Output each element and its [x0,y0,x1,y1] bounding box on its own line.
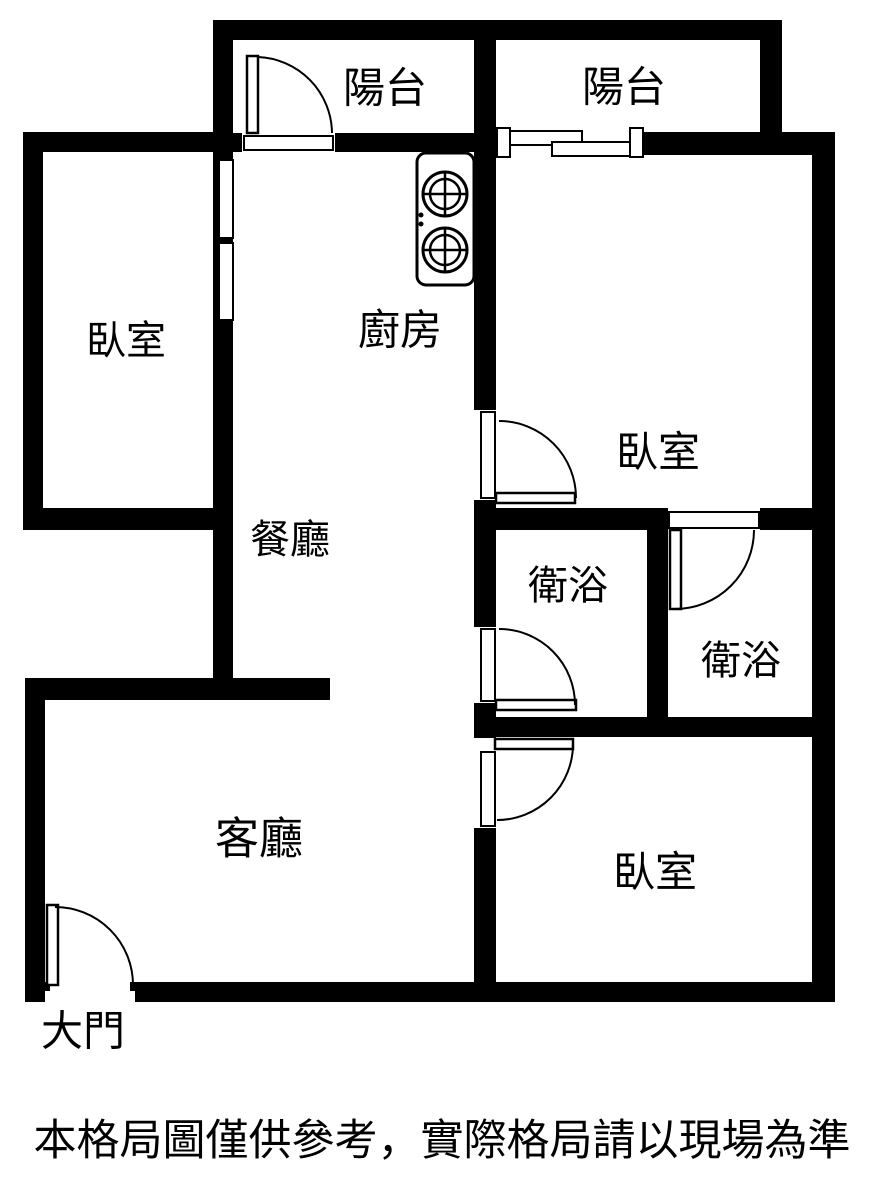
door-frame-bathroom-left [481,629,495,701]
label-entrance: 大門 [41,1008,125,1055]
wall-bathroom-divider [647,530,668,717]
door-leaf-bedroom-right [496,493,575,503]
door-leaf-balcony-left [247,56,258,133]
door-arc-bathroom-right [675,530,754,609]
stove-knob-2 [419,222,424,227]
door-arc-bedroom-bottom [497,744,573,820]
stove-knob-1 [419,213,424,218]
door-leaf-bathroom-right [670,530,681,609]
wall-left-upper [23,132,43,530]
label-bedroom-left: 臥室 [86,319,166,363]
gas-stove-icon [417,153,474,285]
door-threshold-balcony-left [244,136,333,150]
door-frame-bathroom-right [669,512,759,528]
door-arc-bedroom-right [499,421,576,498]
door-frame-bedroom-bottom [481,752,495,826]
window-bedroom-left-lower [219,243,233,320]
door-leaf-bedroom-bottom [495,739,573,749]
label-balcony-right: 陽台 [582,64,666,111]
window-bedroom-left-upper [219,160,233,238]
door-frame-bedroom-right [481,412,495,498]
door-arc-main-door [55,907,133,985]
wall-bedroom-left-top [23,132,233,152]
label-balcony-left: 陽台 [343,65,427,112]
floor-plan-drawing: 陽台 陽台 臥室 廚房 臥室 餐廳 衛浴 衛浴 客廳 臥室 大門 本格局圖僅供參… [0,0,889,1192]
wall-balcony-left-bottom-a [213,133,243,152]
window-balcony-right-panel-lower [552,142,630,156]
wall-top [213,20,782,40]
door-arc-balcony-left [258,57,332,133]
wall-main-vertical [474,132,496,982]
window-balcony-right-cap-right [630,128,643,157]
label-bathroom-left: 衛浴 [528,564,608,608]
label-living: 客廳 [215,815,303,864]
wall-bathrooms-bottom [474,717,835,737]
wall-bedroom-left-bottom [23,508,233,530]
wall-bedroom-right-bottom [496,508,812,530]
label-bathroom-right: 衛浴 [701,639,781,683]
label-kitchen: 廚房 [358,307,442,354]
wall-balcony-right-right [760,20,782,132]
label-bedroom-bottom: 臥室 [613,849,697,896]
wall-balcony-right-bottom [643,132,835,155]
wall-balcony-left-bottom-b [335,133,474,152]
wall-balcony-divider [474,20,496,132]
wall-bottom [25,982,835,1002]
label-bedroom-right: 臥室 [616,429,700,476]
door-leaf-bathroom-left [496,700,576,710]
door-arc-bathroom-left [499,629,575,705]
window-balcony-right-cap-left [497,128,510,157]
disclaimer-text: 本格局圖僅供參考，實際格局請以現場為準 [34,1117,851,1165]
door-leaf-main-door [47,905,58,985]
wall-left-lower [25,678,45,1002]
wall-right-outer [812,132,835,1002]
wall-living-top [25,678,330,700]
label-dining: 餐廳 [250,518,330,562]
floor-plan-canvas: 陽台 陽台 臥室 廚房 臥室 餐廳 衛浴 衛浴 客廳 臥室 大門 本格局圖僅供參… [0,0,889,1192]
